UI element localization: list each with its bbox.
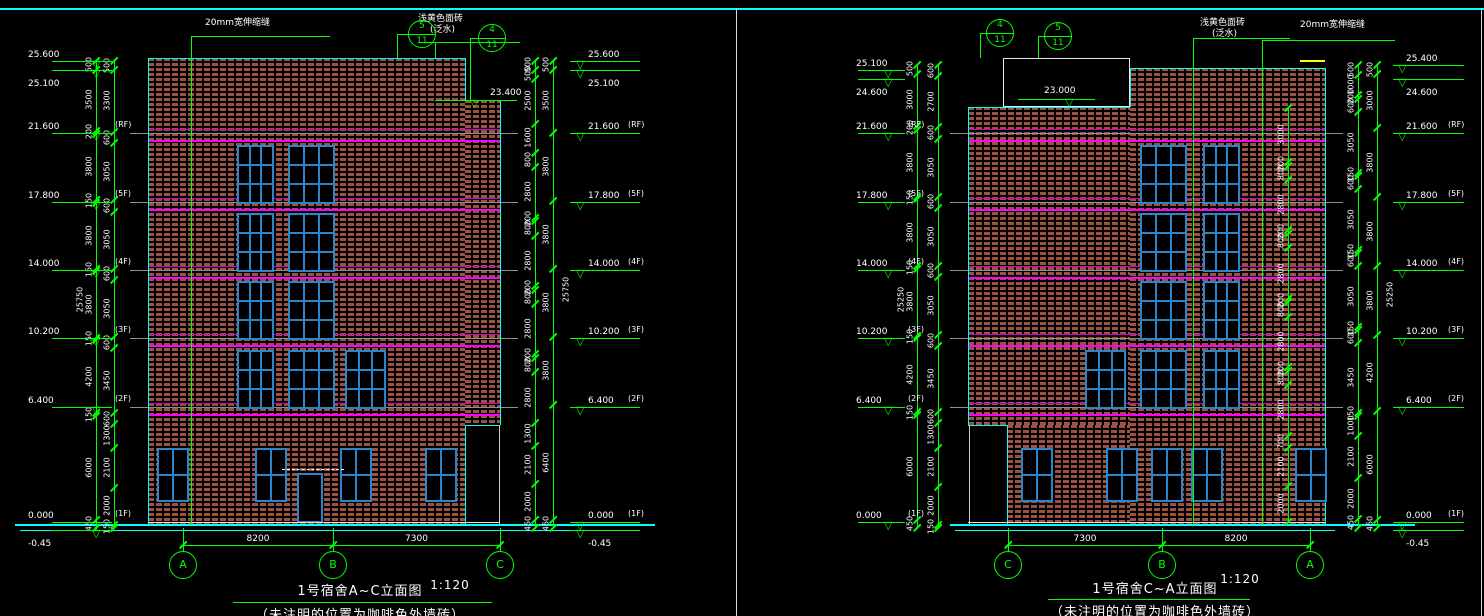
elevation-value: 17.800: [856, 191, 888, 201]
bay-dim-value: 7300: [392, 534, 442, 544]
grid-extension-line: [333, 528, 334, 552]
dim-value: 3800: [1366, 283, 1375, 317]
dim-value: 150: [927, 509, 936, 543]
window: [237, 281, 274, 340]
elevation-marker-line: [858, 338, 905, 339]
dim-value: 500: [1366, 52, 1375, 86]
dim-value: 3800: [85, 287, 94, 321]
window: [288, 213, 335, 272]
dim-value: 3800: [906, 146, 915, 180]
floor-label: (RF): [628, 120, 644, 129]
detail-bubble-divider: [986, 33, 1014, 34]
floor-label: (3F): [115, 325, 131, 334]
floor-label: (4F): [1448, 257, 1464, 266]
facade-edge-left: [968, 107, 969, 425]
dim-value: 3050: [927, 219, 936, 253]
elevation-value: 17.800: [1406, 191, 1438, 201]
dim-chain-line: [938, 65, 939, 528]
elevation-value: 17.800: [588, 191, 620, 201]
dim-value: 3800: [542, 286, 551, 320]
bay-dim-value: 8200: [233, 534, 283, 544]
elevation-marker-triangle: ▽: [92, 131, 100, 142]
elevation-marker-triangle: ▽: [576, 268, 584, 279]
elevation-marker-triangle: ▽: [576, 336, 584, 347]
dim-value: 800: [524, 348, 533, 382]
elevation-marker-triangle: ▽: [1398, 268, 1406, 279]
elevation-marker-triangle: ▽: [1398, 77, 1406, 88]
elevation-value: 6.400: [28, 396, 54, 406]
elevation-marker-line: [858, 79, 905, 80]
dim-value: 6000: [906, 450, 915, 484]
dim-value: 3800: [906, 285, 915, 319]
elevation-marker-triangle: ▽: [884, 268, 892, 279]
window: [1140, 281, 1187, 340]
dim-value: 3500: [85, 83, 94, 117]
dim-value: 4200: [906, 358, 915, 392]
floor-label: (2F): [628, 394, 644, 403]
elevation-value: 25.100: [28, 79, 60, 89]
elevation-value: 21.600: [856, 122, 888, 132]
elevation-value: 6.400: [588, 396, 614, 406]
elevation-value: 17.800: [28, 191, 60, 201]
floor-label: (4F): [908, 257, 924, 266]
elevation-marker-line: [858, 407, 905, 408]
dim-value: 3300: [103, 84, 112, 118]
elevation-value: 14.000: [1406, 259, 1438, 269]
annotation-leader-h: [1193, 38, 1290, 39]
elevation-marker-triangle: ▽: [884, 520, 892, 531]
dim-value: 4200: [85, 359, 94, 393]
dim-value: 2000: [1277, 487, 1286, 521]
annotation-leader-h: [1262, 40, 1395, 41]
elevation-value: 25.100: [856, 59, 888, 69]
dim-value: 3050: [1347, 279, 1356, 313]
dim-value: 6400: [542, 445, 551, 479]
wall-return-line: [499, 425, 500, 525]
sheet-divider: [736, 8, 737, 616]
window: [1140, 213, 1187, 272]
dim-total-value: 25750: [76, 283, 85, 317]
dim-value: 3450: [927, 361, 936, 395]
dim-value: 3800: [906, 215, 915, 249]
annotation-leader-v: [191, 36, 192, 525]
elevation-marker-triangle: ▽: [92, 528, 100, 539]
window: [288, 350, 335, 409]
step-marker-line: [1018, 99, 1095, 100]
elevation-value: 21.600: [28, 122, 60, 132]
dim-value: 3050: [927, 150, 936, 184]
floor-label: (3F): [908, 325, 924, 334]
annotation-text: 浅黄色面砖: [1200, 18, 1245, 28]
dim-value: 450: [524, 506, 533, 540]
floor-label: (1F): [908, 509, 924, 518]
floor-label: (2F): [115, 394, 131, 403]
dim-value: 2800: [1277, 393, 1286, 427]
elevation-marker-line: [52, 202, 112, 203]
elevation-marker-triangle: ▽: [1398, 528, 1406, 539]
dim-value: 3800: [85, 150, 94, 184]
sheet-right-border: [1481, 8, 1482, 616]
dim-value: 4200: [1366, 356, 1375, 390]
elevation-marker-triangle: ▽: [576, 131, 584, 142]
floor-band-strong: [148, 414, 500, 416]
facade-brick-step: [465, 100, 500, 425]
dim-value: 2700: [927, 84, 936, 118]
elevation-marker-line: [52, 61, 112, 62]
facade-notch-top: [465, 425, 500, 426]
dim-value: 3450: [103, 363, 112, 397]
base-line-secondary: [955, 530, 1335, 531]
dim-value: 1300: [927, 418, 936, 452]
dim-value: 150: [906, 250, 915, 284]
window: [1085, 350, 1126, 409]
detail-bubble-divider: [478, 38, 506, 39]
floor-band-strong: [968, 140, 1325, 142]
dim-value: 3450: [1347, 360, 1356, 394]
elevation-marker-triangle: ▽: [92, 268, 100, 279]
elevation-value: 0.000: [856, 511, 882, 521]
elevation-value: 0.000: [588, 511, 614, 521]
detail-leader-h: [397, 34, 408, 35]
elevation-marker-line: [858, 70, 905, 71]
sheet-top-border: [0, 8, 1484, 10]
elevation-marker-triangle: ▽: [92, 405, 100, 416]
elevation-value: 24.600: [1406, 88, 1438, 98]
dim-value: 3050: [1347, 125, 1356, 159]
dim-value: 3800: [542, 354, 551, 388]
dim-value: 800: [524, 279, 533, 313]
detail-sheet-number: 11: [1044, 38, 1072, 49]
annotation-text: 20mm宽伸缩缝: [1300, 20, 1365, 30]
dim-value: 600: [927, 53, 936, 87]
elevation-marker-line: [858, 202, 905, 203]
elevation-marker-triangle: ▽: [92, 68, 100, 79]
facade-step-top: [968, 107, 1130, 108]
grid-extension-line: [1162, 528, 1163, 552]
elevation-marker-line: [858, 522, 905, 523]
floor-label: (RF): [908, 120, 924, 129]
dim-value: 600: [1347, 165, 1356, 199]
dim-value: 450: [542, 506, 551, 540]
ground-window: [340, 448, 372, 502]
floor-band-strong: [968, 277, 1325, 279]
dim-chain-line: [1377, 65, 1378, 528]
elevation-value: 14.000: [28, 259, 60, 269]
elevation-value: 25.400: [1406, 54, 1438, 64]
dim-value: 450: [1347, 506, 1356, 540]
bay-dim-value: 7300: [1060, 534, 1110, 544]
dim-value: 2100: [103, 451, 112, 485]
elevation-value: 21.600: [588, 122, 620, 132]
window: [237, 213, 274, 272]
facade-edge-right: [500, 100, 501, 425]
dim-chain-line: [535, 61, 536, 528]
elevation-value: 14.000: [856, 259, 888, 269]
dim-value: 2100: [1277, 450, 1286, 484]
bay-dim-line: [183, 545, 500, 546]
elevation-marker-line: [52, 338, 112, 339]
dim-value: 800: [524, 142, 533, 176]
elevation-marker-triangle: ▽: [576, 528, 584, 539]
floor-band-strong: [148, 140, 500, 142]
window: [1203, 145, 1240, 204]
dim-value: 600: [1347, 242, 1356, 276]
annotation-leader-v: [1262, 40, 1263, 525]
dim-value: 3500: [542, 84, 551, 118]
dim-value: 600: [103, 257, 112, 291]
grid-bubble-letter: B: [319, 558, 347, 572]
detail-number: 4: [478, 25, 506, 36]
elevation-marker-triangle: ▽: [884, 77, 892, 88]
elevation-value: 10.200: [28, 327, 60, 337]
right-drawing-subtitle: （未注明的位置为咖啡色外墙砖）: [1005, 601, 1305, 616]
dim-total-value: 25750: [562, 273, 571, 307]
dim-value: 2500: [524, 84, 533, 118]
elevation-marker-triangle: ▽: [884, 336, 892, 347]
bay-dim-value: 8200: [1211, 534, 1261, 544]
detail-number: 4: [986, 20, 1014, 31]
dim-value: 2100: [927, 450, 936, 484]
annotation-leader-h: [191, 36, 330, 37]
annotation-text: 20mm宽伸缩缝: [205, 18, 270, 28]
floor-slab-line: [130, 133, 518, 134]
dim-value: 1300: [524, 417, 533, 451]
floor-band-strong: [968, 414, 1325, 416]
elevation-marker-triangle: ▽: [92, 200, 100, 211]
detail-leader-v: [397, 34, 398, 58]
grid-extension-line: [1310, 528, 1311, 552]
dim-value: 150: [103, 509, 112, 543]
base-line-main: [950, 524, 1415, 526]
elevation-value: 24.600: [856, 88, 888, 98]
elevation-value: 6.400: [1406, 396, 1432, 406]
step-marker-triangle: ▽: [470, 98, 478, 109]
dim-value: 800: [1277, 292, 1286, 326]
elevation-value: -0.45: [28, 539, 51, 549]
dim-value: 600: [103, 189, 112, 223]
dim-value: 600: [1347, 319, 1356, 353]
grid-bubble-letter: C: [994, 558, 1022, 572]
detail-leader-v: [1038, 36, 1039, 58]
dim-total-value: 25250: [897, 283, 906, 317]
title-underline: [233, 602, 492, 603]
dim-value: 3050: [103, 291, 112, 325]
elevation-marker-triangle: ▽: [1398, 405, 1406, 416]
floor-label: (4F): [628, 257, 644, 266]
dim-value: 6000: [1366, 448, 1375, 482]
ground-window: [255, 448, 287, 502]
elevation-marker-line: [52, 70, 112, 71]
door-lintel-line: [282, 469, 344, 470]
grid-extension-line: [500, 528, 501, 552]
elevation-value: 10.200: [856, 327, 888, 337]
elevation-marker-triangle: ▽: [1398, 63, 1406, 74]
dim-value: 2100: [524, 448, 533, 482]
floor-label: (5F): [1448, 189, 1464, 198]
dim-value: 6000: [85, 450, 94, 484]
dim-value: 3050: [1347, 202, 1356, 236]
step-marker-triangle: ▽: [1065, 97, 1073, 108]
floor-label: (5F): [908, 189, 924, 198]
facade-notch-edge: [465, 425, 466, 525]
floor-label: (1F): [1448, 509, 1464, 518]
dim-value: 3800: [1366, 214, 1375, 248]
grid-bubble-letter: A: [1296, 558, 1324, 572]
elevation-marker-triangle: ▽: [1398, 200, 1406, 211]
entrance-door: [297, 473, 323, 523]
ground-window: [1191, 448, 1223, 502]
dim-value: 3800: [542, 217, 551, 251]
floor-label: (1F): [115, 509, 131, 518]
floor-label: (4F): [115, 257, 131, 266]
dim-total-value: 25250: [1386, 278, 1395, 312]
elevation-marker-line: [858, 270, 905, 271]
detail-leader-h: [470, 38, 478, 39]
dim-value: 600: [927, 185, 936, 219]
dim-value: 500: [542, 48, 551, 82]
dim-value: 600: [103, 120, 112, 154]
elevation-marker-triangle: ▽: [884, 200, 892, 211]
floor-label: (5F): [115, 189, 131, 198]
cad-elevation-canvas[interactable]: 1号宿舍A~C立面图 1:120 （未注明的位置为咖啡色外墙砖） 1号宿舍C~A…: [0, 0, 1484, 616]
elevation-value: 0.000: [28, 511, 54, 521]
ground-line: [148, 522, 500, 523]
detail-sheet-number: 11: [478, 40, 506, 51]
window: [345, 350, 386, 409]
elevation-marker-line: [52, 522, 112, 523]
dim-value: 3050: [927, 288, 936, 322]
title-underline: [1048, 599, 1250, 600]
left-drawing-scale: 1:120: [420, 578, 480, 592]
facade-edge-top: [1130, 68, 1325, 69]
window: [288, 145, 335, 204]
dim-value: 3050: [103, 154, 112, 188]
dim-value: 500: [103, 48, 112, 82]
dim-value: 3000: [1366, 84, 1375, 118]
elevation-value: 25.600: [588, 50, 620, 60]
parapet-flashing-line: [1300, 60, 1325, 62]
dim-value: 600: [927, 254, 936, 288]
grid-extension-line: [1008, 528, 1009, 552]
step-elevation-value: 23.000: [1044, 86, 1076, 96]
floor-label: (2F): [908, 394, 924, 403]
detail-number: 5: [1044, 23, 1072, 34]
elevation-marker-triangle: ▽: [1398, 336, 1406, 347]
detail-sheet-number: 11: [408, 36, 436, 47]
grid-bubble-letter: C: [486, 558, 514, 572]
ground-window: [1021, 448, 1053, 502]
dim-value: 600: [1347, 88, 1356, 122]
elevation-marker-line: [52, 530, 112, 531]
elevation-value: 10.200: [588, 327, 620, 337]
window: [288, 281, 335, 340]
grid-bubble-letter: B: [1148, 558, 1176, 572]
floor-label: (5F): [628, 189, 644, 198]
elevation-marker-line: [52, 270, 112, 271]
elevation-marker-triangle: ▽: [576, 405, 584, 416]
ground-window: [1106, 448, 1138, 502]
elevation-value: 25.600: [28, 50, 60, 60]
dim-chain-line: [917, 65, 918, 528]
elevation-marker-line: [52, 133, 112, 134]
floor-band-strong: [148, 345, 500, 347]
detail-bubble-divider: [408, 34, 436, 35]
grid-extension-line: [183, 528, 184, 552]
floor-band-thin: [968, 129, 1325, 130]
dim-value: 2800: [524, 380, 533, 414]
dim-value: 600: [927, 323, 936, 357]
dim-chain-line: [1358, 65, 1359, 528]
detail-bubble-divider: [1044, 36, 1072, 37]
detail-sheet-number: 11: [986, 35, 1014, 46]
ground-window: [1295, 448, 1327, 502]
elevation-marker-line: [52, 407, 112, 408]
dim-value: 2100: [1347, 440, 1356, 474]
wall-return-line: [969, 425, 970, 525]
elevation-value: 25.100: [588, 79, 620, 89]
elevation-value: 0.000: [1406, 511, 1432, 521]
ground-window: [157, 448, 189, 502]
elevation-value: -0.45: [588, 539, 611, 549]
window: [237, 350, 274, 409]
dim-value: 3050: [103, 223, 112, 257]
floor-label: (3F): [1448, 325, 1464, 334]
floor-label: (RF): [115, 120, 131, 129]
facade-edge-left: [148, 58, 149, 525]
ground-window: [1151, 448, 1183, 502]
elevation-value: 6.400: [856, 396, 882, 406]
elevation-marker-triangle: ▽: [576, 68, 584, 79]
window: [1203, 281, 1240, 340]
detail-number: 5: [408, 21, 436, 32]
window: [1140, 350, 1187, 409]
step-elevation-value: 23.400: [490, 88, 522, 98]
window: [1203, 350, 1240, 409]
dim-value: 800: [1277, 155, 1286, 189]
elevation-marker-triangle: ▽: [884, 131, 892, 142]
floor-band-thin: [148, 129, 500, 130]
detail-leader-v: [980, 33, 981, 58]
dim-value: 3800: [542, 149, 551, 183]
elevation-value: -0.45: [1406, 539, 1429, 549]
facade-edge-top: [148, 58, 465, 59]
dim-value: 1300: [103, 419, 112, 453]
left-drawing-subtitle: （未注明的位置为咖啡色外墙砖）: [210, 604, 510, 616]
floor-label: (2F): [1448, 394, 1464, 403]
dim-value: 450: [1366, 506, 1375, 540]
dim-value: 800: [1277, 224, 1286, 258]
floor-label: (RF): [1448, 120, 1464, 129]
elevation-value: 21.600: [1406, 122, 1438, 132]
dim-value: 800: [1277, 361, 1286, 395]
facade-step-edge: [465, 58, 466, 100]
floor-band-strong: [148, 277, 500, 279]
grid-bubble-letter: A: [169, 558, 197, 572]
floor-label: (3F): [628, 325, 644, 334]
facade-notch-edge: [1007, 425, 1008, 525]
window: [237, 145, 274, 204]
floor-band-strong: [148, 209, 500, 211]
floor-band-strong: [968, 345, 1325, 347]
dim-value: 600: [103, 325, 112, 359]
annotation-leader-v: [1193, 38, 1194, 525]
elevation-marker-line: [858, 133, 905, 134]
ground-line: [968, 522, 1325, 523]
floor-label: (1F): [628, 509, 644, 518]
elevation-marker-triangle: ▽: [92, 336, 100, 347]
detail-leader-v: [470, 38, 471, 100]
elevation-value: 14.000: [588, 259, 620, 269]
